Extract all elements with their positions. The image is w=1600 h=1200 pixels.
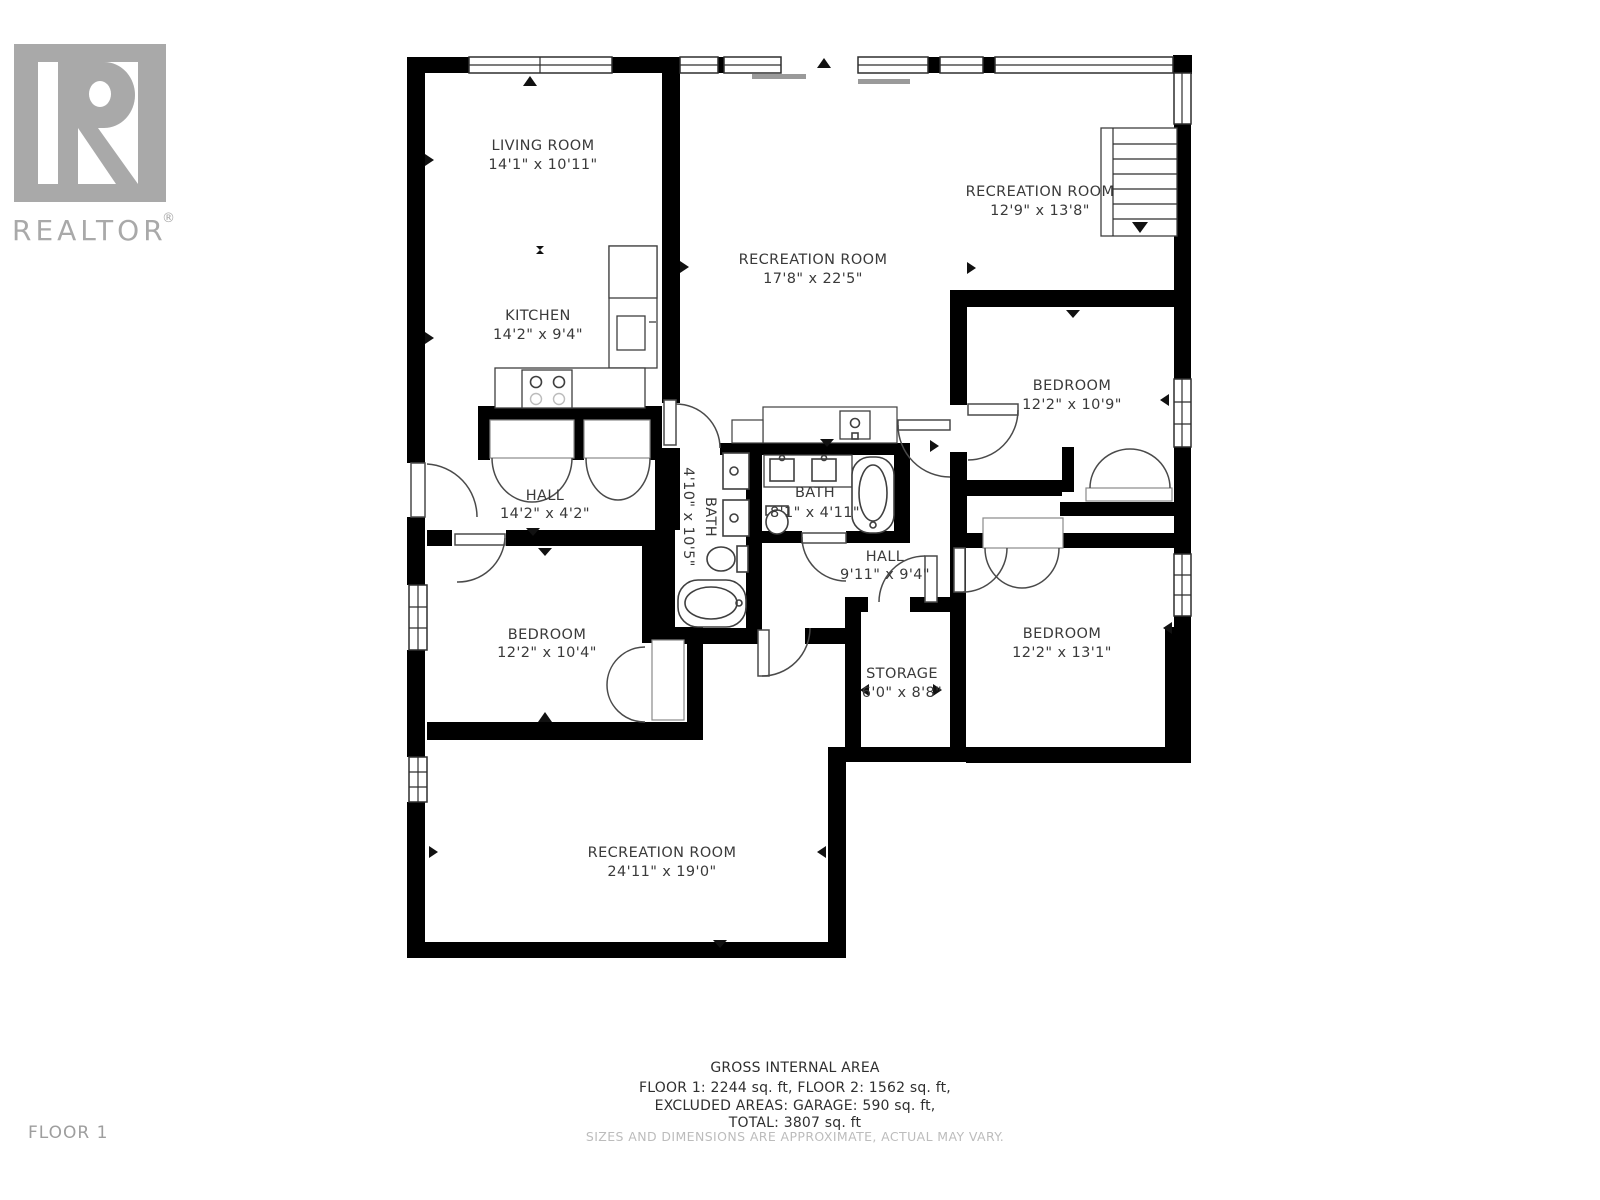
room-dims: 9'11" x 9'4"	[840, 567, 930, 583]
floor-plan-page: REALTOR ®	[0, 0, 1600, 1200]
door-rec-lower	[758, 628, 810, 676]
room-name: RECREATION ROOM	[588, 845, 737, 861]
room-dims: 14'2" x 9'4"	[493, 327, 583, 343]
window-bedroom-lower-right	[1174, 554, 1191, 616]
door-bath-left	[664, 400, 720, 448]
room-name: RECREATION ROOM	[739, 252, 888, 268]
footer-disclaimer: SIZES AND DIMENSIONS ARE APPROXIMATE, AC…	[586, 1129, 1004, 1144]
realtor-logo-r-counter	[89, 81, 111, 107]
window-bedroom-upper-right	[1174, 379, 1191, 447]
room-label-recreation-room-lower: RECREATION ROOM 24'11" x 19'0"	[588, 845, 737, 880]
window-rec-top-4	[940, 57, 983, 73]
room-label-hall-upper: HALL 14'2" x 4'2"	[500, 488, 590, 522]
room-label-hall-center: HALL 9'11" x 9'4"	[840, 549, 930, 583]
room-dims: 6'0" x 8'8"	[862, 685, 942, 701]
room-dims: 14'2" x 4'2"	[500, 506, 590, 522]
window-rec-top-5	[995, 57, 1173, 73]
room-dims: 14'1" x 10'11"	[488, 157, 597, 173]
room-label-bath-center: BATH 8'1" x 4'11"	[770, 485, 860, 521]
bifold-bedroom-left-closet	[607, 647, 645, 722]
room-dims: 12'2" x 13'1"	[1012, 645, 1112, 661]
double-vanity	[764, 455, 852, 487]
oven	[617, 316, 645, 350]
cooktop	[522, 370, 572, 408]
realtor-wordmark: REALTOR	[12, 214, 167, 247]
footer-line1: FLOOR 1: 2244 sq. ft, FLOOR 2: 1562 sq. …	[639, 1080, 951, 1096]
registered-mark: ®	[162, 211, 175, 226]
room-dims: 24'11" x 19'0"	[607, 864, 716, 880]
room-name: RECREATION ROOM	[966, 184, 1115, 200]
window-rec-top-2	[724, 57, 781, 73]
room-dims: 12'2" x 10'9"	[1022, 397, 1122, 413]
room-label-recreation-room-upper: RECREATION ROOM 12'9" x 13'8"	[966, 184, 1115, 219]
deck-edge-line	[858, 79, 910, 84]
room-dims: 4'10" x 10'5"	[680, 467, 696, 567]
room-label-living-room: LIVING ROOM 14'1" x 10'11"	[488, 138, 597, 173]
room-label-bedroom-lower-right: BEDROOM 12'2" x 13'1"	[1012, 626, 1112, 661]
window-rec-top-3	[858, 57, 928, 73]
door-bedroom-lower-right	[954, 548, 1007, 592]
floor-plan-canvas: REALTOR ®	[0, 0, 1600, 1200]
window-living-top	[469, 57, 612, 73]
window-rec-lower-left	[409, 757, 427, 802]
realtor-logo-r-stem	[58, 62, 78, 184]
room-label-recreation-room-main: RECREATION ROOM 17'8" x 22'5"	[739, 252, 888, 287]
room-label-storage: STORAGE 6'0" x 8'8"	[862, 666, 942, 701]
bifold-hall-closet-2	[586, 458, 650, 500]
room-dims: 17'8" x 22'5"	[763, 271, 863, 287]
room-label-bedroom-upper-right: BEDROOM 12'2" x 10'9"	[1022, 378, 1122, 413]
room-dims: 12'2" x 10'4"	[497, 645, 597, 661]
sink	[723, 453, 749, 489]
room-name: HALL	[526, 488, 565, 504]
staircase	[1101, 128, 1177, 236]
room-name: LIVING ROOM	[491, 138, 594, 154]
entry-door-hall-upper	[411, 463, 477, 517]
realtor-logo: REALTOR ®	[12, 44, 175, 247]
room-name: BATH	[795, 485, 835, 501]
sink	[723, 500, 749, 536]
footer-title: GROSS INTERNAL AREA	[710, 1060, 880, 1076]
room-name: BEDROOM	[508, 627, 587, 643]
room-name: BATH	[702, 497, 718, 537]
footer-line2: EXCLUDED AREAS: GARAGE: 590 sq. ft,	[655, 1098, 936, 1114]
room-name: BEDROOM	[1033, 378, 1112, 394]
deck-edge-line	[752, 74, 806, 79]
wet-bar	[732, 407, 897, 443]
bathtub	[852, 457, 894, 533]
window-rec-top-1	[680, 57, 718, 73]
bathtub	[678, 580, 746, 627]
bifold-hall-center-closet	[985, 548, 1059, 588]
refrigerator	[609, 246, 657, 298]
bar-sink	[840, 411, 870, 439]
room-dims: 12'9" x 13'8"	[990, 203, 1090, 219]
bifold-bedroom-upper-right-closet	[1090, 449, 1170, 488]
room-name: KITCHEN	[505, 308, 571, 324]
room-name: BEDROOM	[1023, 626, 1102, 642]
room-name: HALL	[866, 549, 905, 565]
room-label-bedroom-left: BEDROOM 12'2" x 10'4"	[497, 627, 597, 661]
room-labels: LIVING ROOM 14'1" x 10'11" KITCHEN 14'2"…	[488, 138, 1121, 880]
footer: GROSS INTERNAL AREA FLOOR 1: 2244 sq. ft…	[586, 1060, 1004, 1144]
window-bedroom-left	[409, 585, 427, 650]
room-name: STORAGE	[866, 666, 938, 682]
door-bedroom-upper-right	[968, 404, 1018, 460]
window-right-top	[1174, 73, 1191, 124]
toilet	[707, 546, 748, 572]
room-dims: 8'1" x 4'11"	[770, 505, 860, 521]
room-label-kitchen: KITCHEN 14'2" x 9'4"	[493, 308, 583, 343]
floor-number-label: FLOOR 1	[28, 1123, 108, 1143]
door-bedroom-left	[455, 534, 505, 582]
